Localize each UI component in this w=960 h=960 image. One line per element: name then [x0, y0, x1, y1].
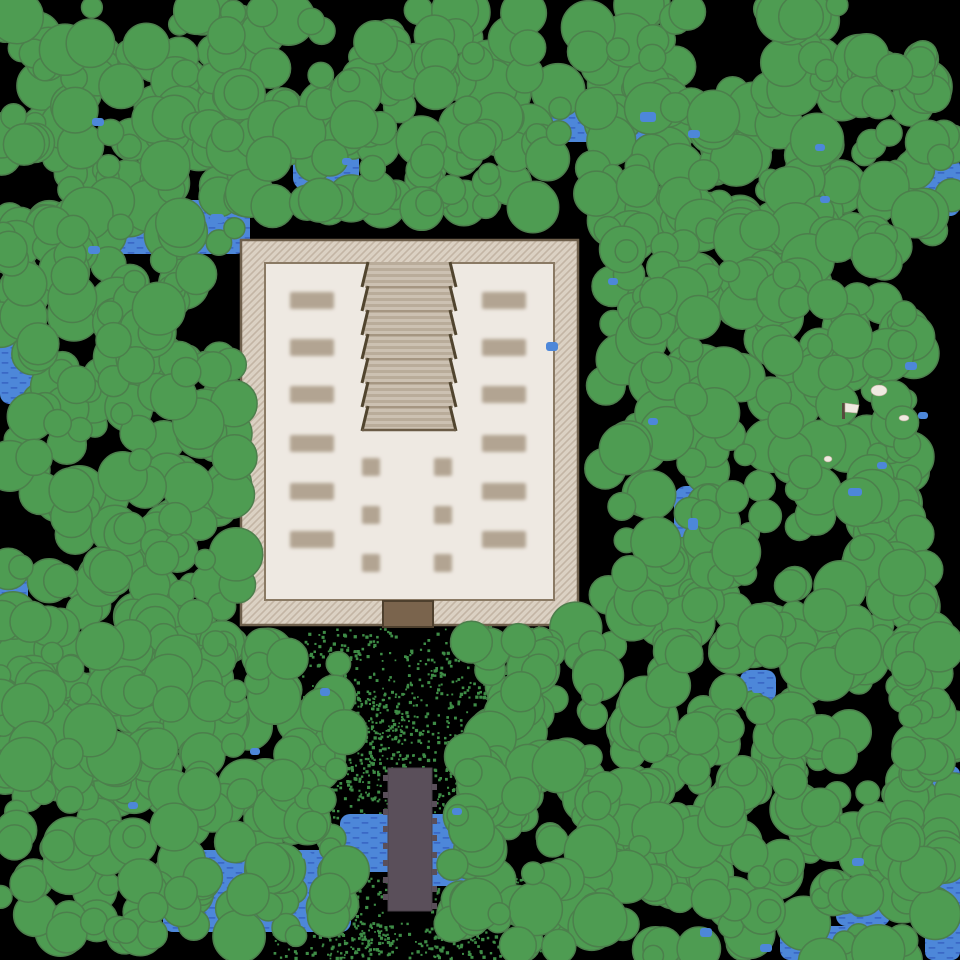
tree — [195, 549, 216, 570]
tree — [176, 254, 217, 295]
tree — [308, 786, 336, 814]
puddle — [700, 928, 712, 937]
tree — [16, 439, 52, 475]
tree — [308, 62, 333, 87]
tree — [899, 705, 922, 728]
tree — [213, 910, 265, 960]
tree — [580, 702, 607, 729]
tree — [791, 113, 844, 166]
puddle — [250, 748, 260, 755]
tree — [665, 635, 702, 672]
tree — [354, 21, 397, 64]
bridge-notch — [432, 903, 437, 909]
puddle — [848, 488, 862, 496]
tree — [716, 481, 748, 513]
bridge-notch — [383, 843, 388, 849]
tree — [502, 777, 540, 815]
tree — [9, 555, 33, 579]
tree — [44, 564, 78, 598]
tree — [51, 257, 88, 294]
tree — [856, 781, 880, 805]
tree — [779, 286, 811, 318]
tree — [822, 738, 857, 773]
tree — [53, 739, 83, 769]
tree — [615, 240, 638, 263]
puddle — [608, 278, 618, 285]
tree — [712, 528, 760, 576]
bridge-notch — [432, 835, 437, 841]
tree — [164, 877, 197, 910]
tree — [892, 737, 926, 771]
tree — [66, 19, 114, 67]
tree — [808, 334, 833, 359]
tree — [98, 874, 120, 896]
tree — [140, 141, 189, 190]
tree — [462, 42, 484, 64]
tree — [267, 638, 308, 679]
tree — [727, 756, 757, 786]
tree — [876, 53, 912, 89]
item-marker[interactable] — [871, 385, 887, 396]
puddle — [752, 684, 764, 693]
tree — [299, 178, 343, 222]
tree — [129, 449, 151, 471]
bridge-notch — [383, 860, 388, 866]
tree — [322, 710, 367, 755]
tree — [719, 261, 740, 282]
tree — [447, 805, 468, 826]
tree — [330, 101, 378, 149]
tree — [17, 323, 59, 365]
bridge-deck[interactable] — [388, 768, 432, 911]
bridge-notch — [383, 894, 388, 900]
puddle — [760, 944, 772, 952]
tree — [150, 803, 198, 851]
tree — [10, 601, 51, 642]
tree — [478, 163, 499, 184]
bridge-notch — [432, 852, 437, 858]
tree — [451, 621, 493, 663]
tree — [123, 23, 169, 69]
puddle — [452, 808, 462, 815]
tree — [775, 570, 807, 602]
tree — [114, 919, 139, 944]
bridge-notch — [432, 818, 437, 824]
tree — [132, 282, 185, 335]
tree — [123, 826, 145, 848]
tree — [251, 185, 294, 228]
tree — [582, 791, 610, 819]
tree — [49, 468, 93, 512]
tree — [607, 38, 630, 61]
tree — [639, 733, 668, 762]
tree — [212, 435, 257, 480]
tree — [246, 137, 291, 182]
tree — [138, 919, 168, 949]
bridge-notch — [383, 792, 388, 798]
tree — [297, 811, 327, 841]
bridge-notch — [383, 809, 388, 815]
tree — [114, 512, 145, 543]
tree — [108, 214, 133, 239]
tree — [138, 893, 168, 923]
tree — [57, 787, 84, 814]
tree — [212, 119, 244, 151]
tree — [227, 779, 257, 809]
tree — [573, 893, 627, 947]
tree — [0, 825, 32, 860]
tree — [734, 444, 755, 465]
tree — [779, 0, 824, 39]
tree — [789, 455, 822, 488]
tree — [862, 86, 895, 119]
puddle — [918, 412, 928, 419]
tree — [772, 764, 807, 799]
tree — [762, 335, 803, 376]
tree — [928, 144, 954, 170]
tree — [749, 500, 781, 532]
tree — [892, 652, 926, 686]
tree — [416, 190, 442, 216]
tree — [298, 8, 324, 34]
tree — [639, 44, 666, 71]
tree — [70, 683, 92, 705]
puddle — [320, 688, 330, 696]
tree — [58, 366, 96, 404]
tree — [641, 352, 672, 383]
bridge[interactable] — [383, 768, 437, 911]
puddle — [648, 418, 658, 425]
tree — [835, 628, 881, 674]
tree — [811, 821, 851, 861]
tree — [247, 0, 278, 27]
tree — [81, 908, 108, 935]
bridge-notch — [432, 886, 437, 892]
tree — [542, 929, 576, 960]
tree — [326, 652, 350, 676]
tree — [224, 76, 258, 110]
tree — [842, 874, 883, 915]
puddle — [88, 246, 100, 254]
item-marker[interactable] — [824, 456, 832, 462]
tree — [153, 686, 189, 722]
tree — [891, 301, 916, 326]
tree — [710, 674, 747, 711]
tree — [224, 218, 245, 239]
tree — [437, 849, 468, 880]
tree — [643, 945, 664, 960]
tree — [661, 93, 690, 122]
tree — [501, 624, 535, 658]
tree — [582, 684, 603, 705]
tree — [689, 160, 719, 190]
tree — [178, 768, 221, 811]
puddle — [342, 158, 352, 165]
tree — [716, 714, 745, 743]
puddle — [210, 214, 224, 223]
tree — [768, 403, 804, 439]
bridge-notch — [432, 801, 437, 807]
bridge-notch — [432, 869, 437, 875]
tree — [828, 314, 872, 358]
tree — [826, 0, 848, 16]
tree — [97, 155, 120, 178]
tree — [42, 830, 75, 863]
tree — [617, 165, 659, 207]
tree — [3, 124, 44, 165]
tree — [172, 358, 201, 387]
temple-stairs[interactable] — [360, 262, 458, 431]
tree — [459, 123, 496, 160]
tree — [172, 60, 199, 87]
tree — [411, 144, 444, 177]
tree — [338, 70, 360, 92]
map-canvas[interactable] — [0, 0, 960, 960]
tree — [96, 323, 131, 358]
tree — [886, 406, 919, 439]
bridge-notch — [432, 784, 437, 790]
temple-door[interactable] — [383, 601, 433, 627]
tree — [575, 87, 617, 129]
tree — [876, 120, 902, 146]
tree — [852, 233, 897, 278]
tree — [879, 549, 926, 596]
tree — [669, 0, 705, 30]
tree — [537, 826, 568, 857]
tree — [326, 758, 348, 780]
tree — [156, 198, 205, 247]
tree — [522, 862, 545, 885]
tree — [41, 642, 63, 664]
tree — [546, 121, 571, 146]
tree — [833, 478, 882, 527]
tree — [111, 403, 133, 425]
puddle — [815, 144, 825, 151]
tree — [568, 31, 609, 72]
puddle — [852, 858, 864, 866]
tree — [145, 541, 178, 574]
tree — [74, 819, 111, 856]
tree — [677, 296, 721, 340]
puddle — [905, 362, 917, 370]
tree — [310, 873, 350, 913]
tree — [740, 210, 779, 249]
tree — [678, 754, 710, 786]
tree — [208, 17, 245, 54]
tree — [99, 64, 144, 109]
tree — [808, 280, 848, 320]
tree — [910, 889, 960, 940]
tree — [745, 470, 776, 501]
tree — [285, 925, 306, 946]
tree — [803, 589, 846, 632]
tree — [910, 593, 936, 619]
tree — [748, 866, 770, 888]
tree — [881, 823, 920, 862]
tree — [746, 696, 774, 724]
tree — [850, 535, 875, 560]
tree — [599, 424, 650, 475]
puddle — [877, 462, 887, 469]
tree — [755, 635, 788, 668]
tree — [225, 680, 247, 702]
tree — [360, 156, 386, 182]
tree — [501, 672, 541, 712]
tree — [802, 788, 840, 826]
tree — [888, 330, 916, 358]
tree — [227, 873, 269, 915]
puddle — [820, 196, 830, 203]
tree — [632, 590, 668, 626]
tree — [679, 338, 703, 362]
bridge-notch — [383, 826, 388, 832]
tree — [774, 859, 798, 883]
tree — [82, 0, 103, 18]
tree — [612, 556, 647, 591]
tree — [454, 759, 482, 787]
tree — [414, 66, 457, 109]
puddle — [302, 852, 312, 859]
tree — [57, 215, 89, 247]
tree — [549, 97, 571, 119]
tree — [631, 307, 662, 338]
tree — [453, 96, 481, 124]
tree — [574, 171, 619, 216]
puddle — [688, 130, 700, 138]
tree — [773, 719, 813, 759]
tree — [510, 30, 546, 66]
tree — [10, 866, 46, 902]
tree — [608, 493, 636, 521]
tree — [676, 712, 719, 755]
tree — [44, 410, 71, 437]
puddle — [546, 342, 558, 351]
tree — [90, 550, 133, 593]
puddle — [640, 112, 656, 122]
bridge-notch — [383, 775, 388, 781]
tree — [705, 787, 745, 827]
tree — [0, 738, 52, 792]
tree — [488, 903, 510, 925]
tree — [76, 622, 124, 670]
tree — [159, 503, 191, 535]
item-marker[interactable] — [899, 415, 909, 421]
tree — [819, 355, 854, 390]
tree — [773, 262, 800, 289]
puddle — [128, 802, 138, 809]
tree — [863, 349, 892, 378]
temple[interactable] — [241, 240, 578, 627]
tree — [137, 728, 178, 769]
bridge-notch — [383, 877, 388, 883]
tree — [675, 383, 708, 416]
tree — [190, 681, 231, 722]
tree — [507, 181, 558, 232]
puddle — [92, 118, 104, 126]
tree — [682, 588, 717, 623]
tree — [210, 528, 263, 581]
tree — [757, 900, 780, 923]
tree — [203, 631, 228, 656]
tree — [691, 879, 730, 918]
tree — [816, 59, 838, 81]
game-map[interactable] — [0, 0, 960, 960]
tree — [52, 87, 98, 133]
tree — [500, 927, 537, 960]
tree — [178, 600, 213, 635]
puddle — [688, 518, 698, 530]
tree — [222, 734, 246, 758]
tree — [532, 740, 585, 793]
tree — [262, 759, 304, 801]
tree — [124, 675, 157, 708]
